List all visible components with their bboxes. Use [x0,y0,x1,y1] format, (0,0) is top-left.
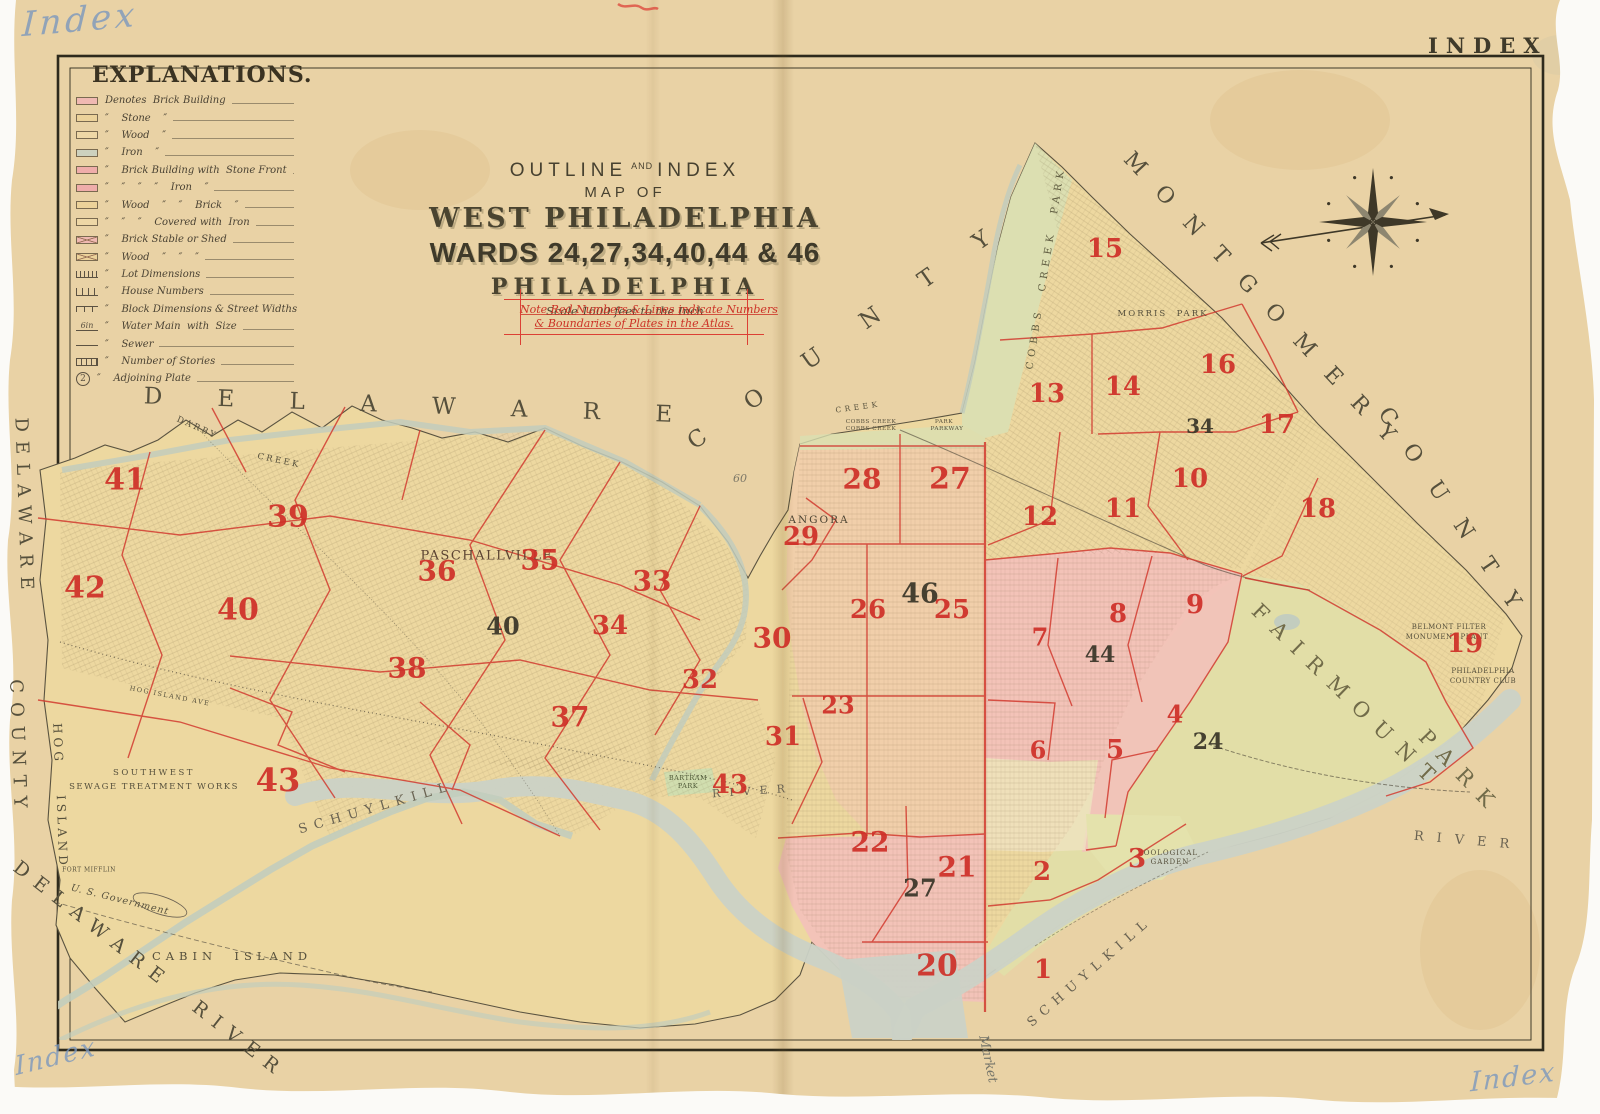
note-line-1: Note Red Numbers & Lines indicate Number… [520,303,778,316]
sheet-corner-label: INDEX [1428,33,1548,58]
legend-row: ″ Sewer [76,335,294,352]
legend-row: Denotes Brick Building [76,92,294,109]
legend-row: ″ Wood ″ ″ ″ [76,249,294,266]
legend-leader-line [214,184,294,191]
legend-leader-line [245,202,294,209]
legend-row: ″ Brick Building with Stone Front [76,162,294,179]
legend-swatch-icon [76,288,98,296]
legend-leader-line [205,254,294,261]
legend-swatch-icon [76,236,98,244]
note-box-border-right [747,289,748,345]
title-outline: OUTLINE [510,160,627,181]
legend-leader-line [173,115,294,122]
legend-label: ″ Wood ″ ″ ″ [105,252,199,263]
legend-row: ″ Block Dimensions & Street Widths [76,301,294,318]
legend-title: EXPLANATIONS. [92,62,294,88]
pencil-number-note: 60 [733,472,747,485]
legend-row: 6in ″ Water Main with Size [76,318,294,335]
legend-swatch-icon [76,149,98,157]
legend-rows: Denotes Brick Building ″ Stone ″ ″ Wood … [76,92,294,388]
legend-swatch-icon [76,253,98,261]
title-index: INDEX [657,160,740,181]
legend-row: ″ Wood ″ ″ Brick ″ [76,196,294,213]
legend-leader-line [293,167,294,174]
legend-row: ″ Wood ″ [76,127,294,144]
legend-swatch-icon [76,97,98,105]
title-block: OUTLINEANDINDEX MAP OF WEST PHILADELPHIA… [425,160,825,318]
legend-swatch-icon [76,358,98,366]
legend-swatch-icon [76,218,98,226]
legend: EXPLANATIONS. Denotes Brick Building ″ S… [76,62,294,388]
legend-leader-line [206,271,294,278]
legend-label: ″ Wood ″ ″ Brick ″ [105,200,239,211]
legend-swatch-icon [76,184,98,192]
legend-label: ″ ″ ″ ″ Iron ″ [105,182,208,193]
legend-leader-line [197,376,294,383]
legend-leader-line [243,324,294,331]
plate-note-box: Note Red Numbers & Lines indicate Number… [520,299,748,335]
legend-swatch-icon [76,166,98,174]
legend-row: 2 ″ Adjoining Plate [76,370,294,387]
legend-label: ″ Brick Building with Stone Front [105,165,287,176]
legend-swatch-icon: 2 [76,372,90,386]
legend-row: ″ ″ ″ Covered with Iron [76,214,294,231]
legend-row: ″ Lot Dimensions [76,266,294,283]
title-philadelphia: PHILADELPHIA [425,274,825,300]
compass-rose-icon [1256,160,1456,290]
legend-leader-line [221,358,294,365]
legend-leader-line [233,237,294,244]
legend-label: ″ Number of Stories [105,356,215,367]
legend-label: ″ Sewer [105,339,153,350]
legend-label: ″ Iron ″ [105,147,159,158]
legend-swatch-icon [76,131,98,139]
legend-label: ″ Block Dimensions & Street Widths [105,304,297,315]
legend-swatch-icon [76,201,98,209]
legend-label: ″ Stone ″ [105,113,167,124]
legend-row: ″ Iron ″ [76,144,294,161]
legend-label: ″ ″ ″ Covered with Iron [105,217,250,228]
legend-row: ″ Brick Stable or Shed [76,231,294,248]
note-box-border-bottom [504,334,764,335]
legend-row: ″ Stone ″ [76,109,294,126]
title-west-philadelphia: WEST PHILADELPHIA [425,203,825,234]
legend-row: ″ ″ ″ ″ Iron ″ [76,179,294,196]
legend-label: ″ Lot Dimensions [105,269,200,280]
note-box-border-top [504,299,764,300]
legend-row: ″ Number of Stories [76,353,294,370]
legend-leader-line [172,132,294,139]
legend-swatch-icon [76,306,98,312]
legend-leader-line [159,341,294,348]
note-box-border-left [520,289,521,345]
legend-label: ″ House Numbers [105,286,204,297]
legend-label: ″ Adjoining Plate [97,373,191,384]
legend-leader-line [232,97,294,104]
legend-leader-line [256,219,294,226]
note-line-2: & Boundaries of Plates in the Atlas. [535,317,734,330]
legend-label: ″ Brick Stable or Shed [105,234,227,245]
legend-swatch-icon [76,342,98,346]
legend-label: ″ Water Main with Size [105,321,237,332]
legend-leader-line [165,150,294,157]
title-and: AND [631,161,653,171]
legend-swatch-icon [76,114,98,122]
legend-swatch-icon [76,271,98,278]
legend-swatch-icon: 6in [76,322,98,331]
atlas-index-map-sheet: EXPLANATIONS. Denotes Brick Building ″ S… [0,0,1600,1114]
legend-label: Denotes Brick Building [105,95,226,106]
legend-label: ″ Wood ″ [105,130,166,141]
title-line-outline-index: OUTLINEANDINDEX [425,160,825,182]
title-wards: WARDS 24,27,34,40,44 & 46 [425,237,825,269]
legend-leader-line [210,289,294,296]
legend-row: ″ House Numbers [76,283,294,300]
title-map-of: MAP OF [425,184,825,201]
